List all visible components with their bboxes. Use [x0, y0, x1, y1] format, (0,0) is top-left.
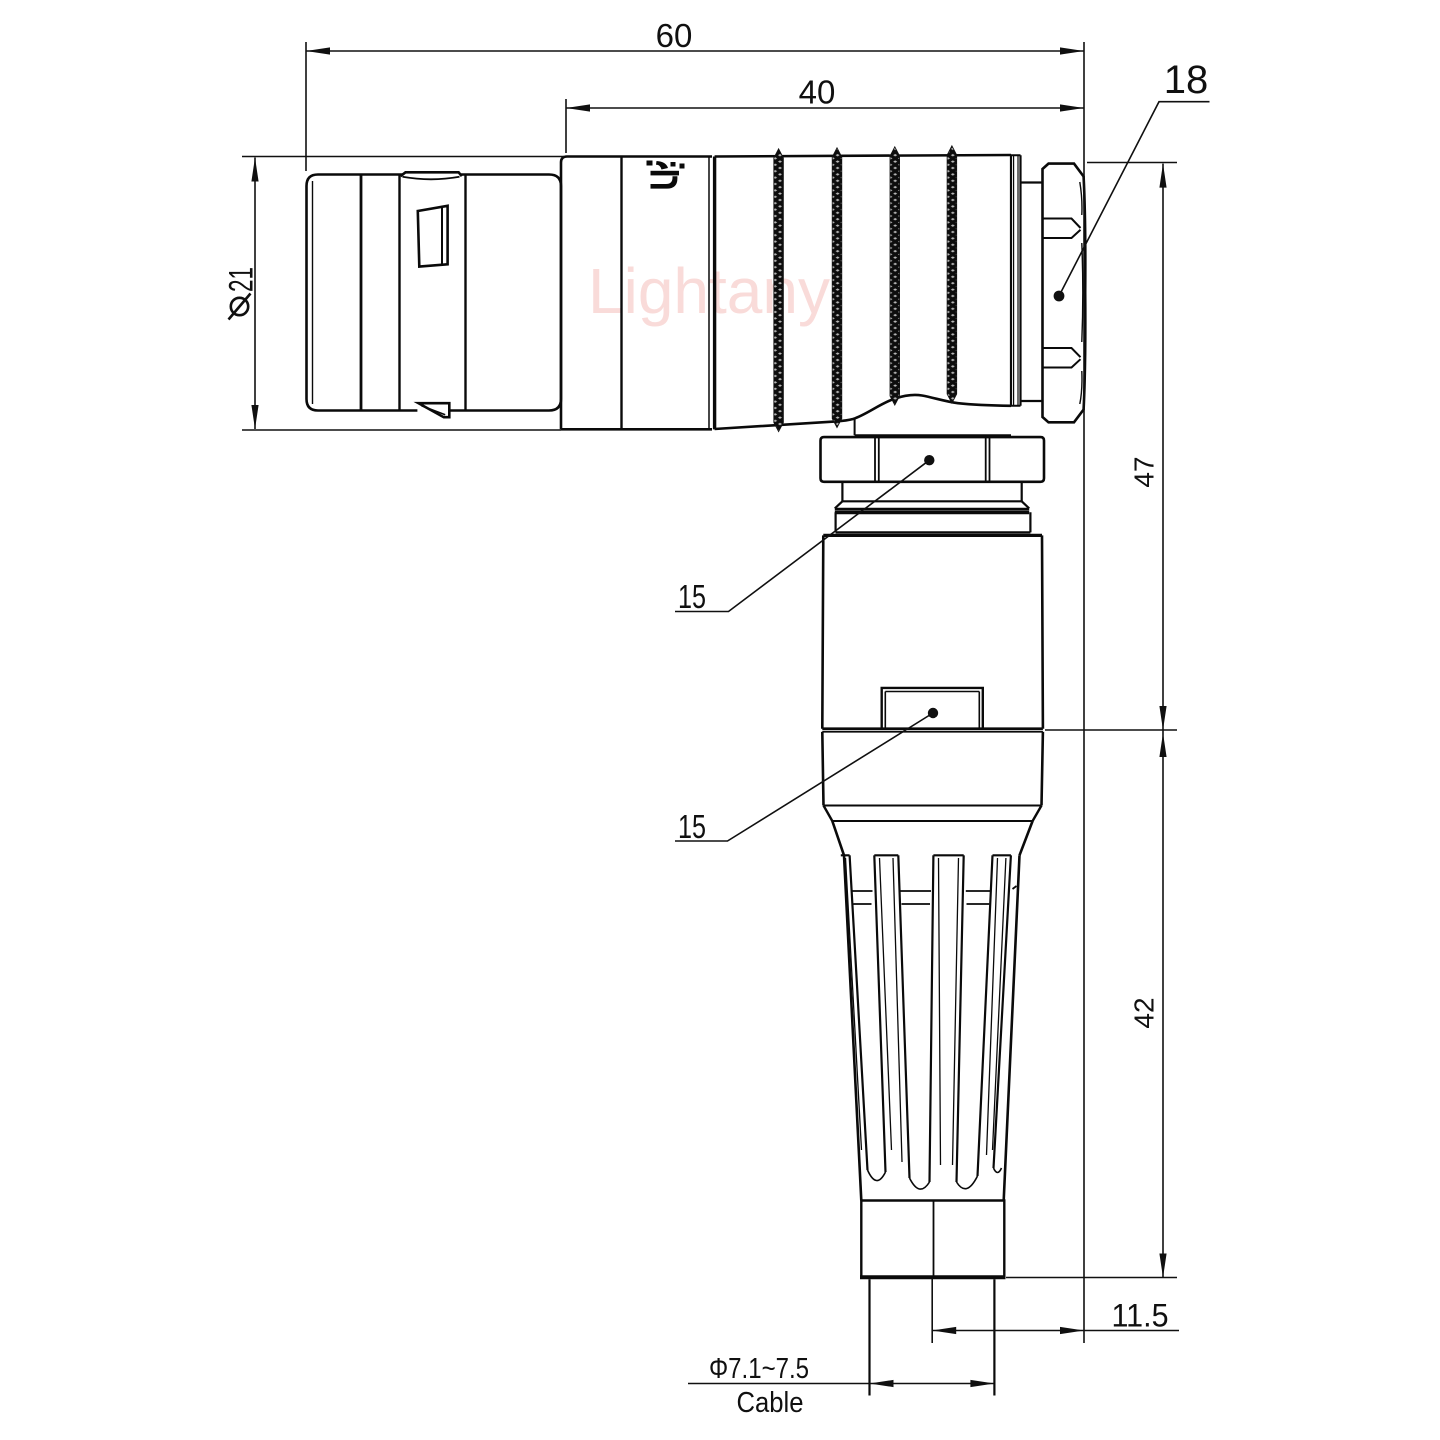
- svg-text:21: 21: [223, 267, 261, 292]
- svg-text:15: 15: [678, 578, 706, 615]
- svg-text:Φ7.1~7.5: Φ7.1~7.5: [709, 1353, 809, 1385]
- svg-text:40: 40: [799, 74, 836, 111]
- svg-text:18: 18: [1164, 58, 1209, 102]
- svg-text:11.5: 11.5: [1112, 1298, 1169, 1334]
- svg-text:Cable: Cable: [737, 1387, 804, 1419]
- svg-text:15: 15: [678, 808, 706, 845]
- svg-text:42: 42: [1128, 997, 1159, 1028]
- svg-text:47: 47: [1128, 456, 1159, 487]
- svg-text:60: 60: [656, 17, 693, 54]
